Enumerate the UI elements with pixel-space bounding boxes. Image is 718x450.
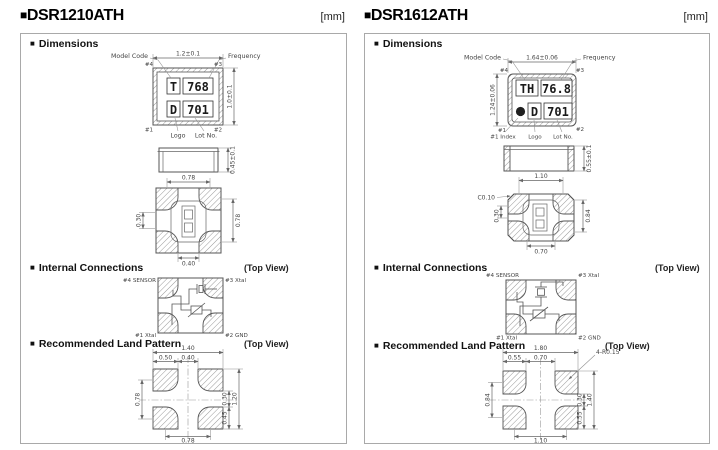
pin-4: #4	[145, 62, 154, 68]
pin-1: #1	[498, 128, 507, 134]
land-pattern-diagram: 1.80 0.55 0.70 4-R0.15 0.84 0	[485, 345, 620, 445]
marking-logo: D	[531, 105, 538, 119]
net-pin-1-xtal: #1 Xtal	[496, 336, 517, 342]
internal-connections-diagram: #4 SENSOR #3 Xtal #1 Xtal #2 GND	[486, 273, 601, 342]
dim-land-bottom: 0.78	[181, 438, 195, 445]
dim-land-pad-w: 0.55	[508, 355, 522, 362]
model-name: DSR1612ATH	[371, 7, 468, 24]
dim-height: 1.24±0.06	[490, 84, 497, 116]
marking-logo: D	[170, 103, 177, 117]
marking-model-code: TH	[520, 82, 534, 96]
marking-lot-no: 701	[547, 105, 569, 119]
pin-3: #3	[576, 68, 585, 74]
dsr1612ath-drawings: TH 76.8 D 701 1.64±0.06 1.24±0.06 Model …	[365, 34, 709, 443]
net-pin-3-xtal: #3 Xtal	[225, 278, 246, 284]
panel-frame: ■Dimensions ■Internal Connections (Top V…	[364, 33, 710, 444]
index-label: #1 Index	[490, 135, 516, 141]
frequency-label: Frequency	[583, 55, 616, 62]
net-pin-2-gnd: #2 GND	[578, 336, 601, 342]
dim-pad-span-top: 1.10	[534, 173, 548, 180]
pin-4: #4	[500, 68, 509, 74]
dim-pad-left: 0.30	[136, 214, 143, 228]
lot-label: Lot No.	[553, 135, 573, 141]
dim-gap-bottom: 0.40	[182, 261, 196, 268]
dim-land-pad-h: 0.55	[577, 411, 584, 425]
package-top-view: TH 76.8 D 701 1.64±0.06 1.24±0.06 Model …	[464, 55, 616, 141]
datasheet-page: ■DSR1210ATH [mm] ■Dimensions ■Internal C…	[0, 0, 718, 450]
dim-pad-left: 0.30	[494, 209, 501, 223]
dim-thickness: 0.55±0.1	[586, 144, 593, 172]
dim-land-gap-w: 0.40	[181, 355, 195, 362]
package-side-view: 0.45±0.1	[158, 146, 237, 174]
dim-land-pad-h: 0.45	[222, 411, 229, 425]
dim-gap-bottom: 0.70	[534, 249, 548, 256]
package-bottom-view: 0.78 0.30 0.78 0.40	[136, 175, 243, 268]
marking-model-code: T	[170, 80, 177, 94]
marking-frequency: 768	[187, 80, 209, 94]
dim-land-gap-w: 0.70	[534, 355, 548, 362]
logo-label: Logo	[170, 133, 185, 140]
dim-land-total-h: 1.20	[232, 392, 239, 406]
package-top-view: T 768 D 701 1.2±0.1 1.0±0.1 Model Code	[111, 51, 261, 140]
dim-width: 1.64±0.06	[526, 55, 558, 62]
net-pin-3-xtal: #3 Xtal	[578, 273, 599, 279]
dim-land-left: 0.78	[135, 393, 142, 407]
dim-land-gap-h: 0.30	[577, 393, 584, 407]
dim-pad-span-right: 0.84	[585, 209, 592, 223]
dim-land-left: 0.84	[485, 393, 492, 407]
dim-thickness: 0.45±0.1	[230, 146, 237, 174]
title-square-icon: ■	[20, 8, 27, 22]
dim-land-pad-w: 0.50	[159, 355, 173, 362]
index-dot	[516, 107, 525, 116]
page-title: ■DSR1210ATH	[20, 7, 124, 25]
net-pin-4-sensor: #4 SENSOR	[123, 278, 156, 284]
marking-lot-no: 701	[187, 103, 209, 117]
lot-label: Lot No.	[195, 133, 217, 140]
panel-dsr1612ath: ■DSR1612ATH [mm] ■Dimensions ■Internal C…	[364, 0, 710, 450]
package-bottom-view: C0.10 1.10 0.30 0.84 0.70	[477, 173, 592, 256]
dim-land-total-w: 1.80	[534, 345, 548, 352]
corner-radius-label: 4-R0.15	[596, 349, 620, 356]
dim-pad-span-right: 0.78	[235, 214, 242, 228]
title-square-icon: ■	[364, 8, 371, 22]
logo-label: Logo	[528, 135, 542, 141]
frequency-label: Frequency	[228, 53, 261, 60]
model-code-label: Model Code	[111, 53, 148, 60]
panel-dsr1210ath: ■DSR1210ATH [mm] ■Dimensions ■Internal C…	[20, 0, 347, 450]
chamfer-label: C0.10	[477, 195, 495, 202]
dim-land-gap-h: 0.30	[222, 392, 229, 406]
dim-width: 1.2±0.1	[176, 51, 200, 58]
pin-3: #3	[214, 62, 223, 68]
net-pin-1-xtal: #1 Xtal	[135, 333, 156, 339]
dsr1210ath-drawings: T 768 D 701 1.2±0.1 1.0±0.1 Model Code	[21, 34, 346, 443]
land-pattern-diagram: 1.40 0.50 0.40 0.78 0.30 0.45	[135, 345, 244, 445]
marking-frequency: 76.8	[542, 82, 571, 96]
net-pin-2-gnd: #2 GND	[225, 333, 248, 339]
pin-1: #1	[145, 128, 154, 134]
model-code-label: Model Code	[464, 55, 501, 62]
page-title: ■DSR1612ATH	[364, 7, 468, 25]
model-name: DSR1210ATH	[27, 7, 124, 24]
package-side-view: 0.55±0.1	[504, 144, 593, 172]
dim-height: 1.0±0.1	[227, 84, 234, 108]
dim-land-total-w: 1.40	[181, 345, 195, 352]
unit-label: [mm]	[321, 11, 345, 23]
dim-pad-span-top: 0.78	[182, 175, 196, 182]
dim-land-bottom: 1.10	[534, 438, 548, 445]
internal-connections-diagram: #4 SENSOR #3 Xtal #1 Xtal #2 GND	[123, 278, 248, 339]
panel-frame: ■Dimensions ■Internal Connections (Top V…	[20, 33, 347, 444]
dim-land-total-h: 1.40	[587, 393, 594, 407]
net-pin-4-sensor: #4 SENSOR	[486, 273, 519, 279]
unit-label: [mm]	[684, 11, 708, 23]
pin-2: #2	[576, 127, 584, 133]
